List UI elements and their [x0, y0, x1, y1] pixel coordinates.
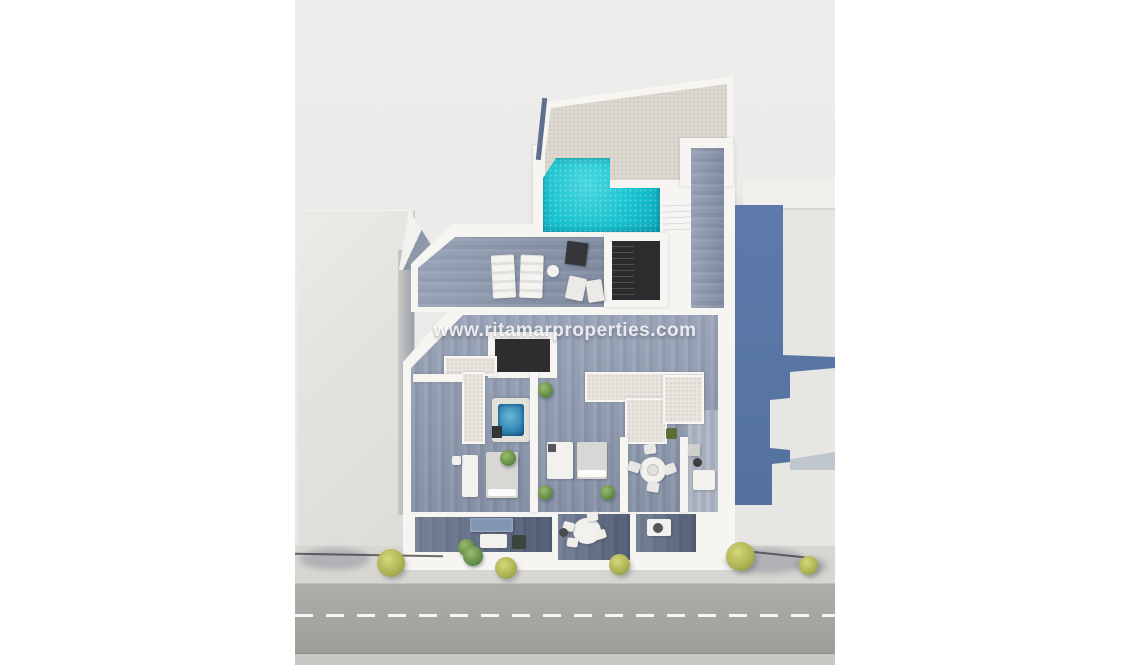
patio-side-table: [559, 528, 568, 537]
dining-chair: [643, 443, 656, 455]
nightstand: [548, 444, 556, 452]
stairwell-steps: [612, 241, 634, 300]
interior-wall: [413, 374, 463, 382]
street-planter-plant: [463, 546, 483, 566]
street-tree: [726, 542, 755, 571]
street-tree: [799, 556, 818, 575]
far-sidewalk-strip: [295, 653, 835, 665]
jacuzzi-towel: [492, 426, 502, 438]
terrace-left-stem: [462, 372, 485, 444]
interior-wall: [620, 437, 628, 512]
bistro-chair: [653, 523, 663, 533]
road-center-dashed-line: [295, 614, 835, 617]
stair-railing: [662, 203, 692, 231]
potted-plant: [500, 450, 516, 466]
deck-side-table: [547, 265, 559, 277]
tree-shadow: [300, 548, 370, 570]
dining-table-setting: [647, 464, 659, 476]
interior-wall: [530, 372, 538, 512]
street-tree: [377, 549, 405, 577]
street-tree: [495, 557, 517, 579]
nightstand: [452, 456, 461, 465]
property-render-page: www.ritamarproperties.com: [0, 0, 1130, 665]
deck-mat: [565, 241, 589, 266]
interior-wall: [680, 437, 688, 512]
small-plant-olive: [666, 428, 677, 439]
sun-lounger: [491, 254, 516, 298]
potted-plant: [600, 485, 615, 500]
watermark-text: www.ritamarproperties.com: [295, 320, 835, 342]
bed-single: [462, 455, 478, 497]
patio-chair: [566, 537, 578, 547]
deck-lounge-chair: [585, 279, 604, 303]
armchair: [688, 444, 700, 456]
dining-chair: [646, 481, 660, 493]
balcony-chaise: [480, 534, 507, 548]
desk: [693, 470, 715, 490]
patio-chair: [587, 511, 599, 521]
potted-plant: [538, 485, 553, 500]
balcony-sofa: [470, 518, 513, 532]
property-render-image: www.ritamarproperties.com: [295, 0, 835, 665]
side-walkway-deck: [691, 148, 724, 308]
bed-pillows: [488, 489, 516, 496]
sun-lounger: [519, 255, 543, 299]
potted-plant: [538, 382, 553, 398]
terrace-center-stem: [625, 398, 667, 444]
stool-dark: [693, 458, 702, 467]
bed-pillows: [578, 470, 606, 477]
road: [295, 583, 835, 654]
terrace-center-right: [663, 375, 704, 424]
interior-void: [495, 339, 550, 372]
balcony-planter: [512, 535, 526, 549]
street-tree: [609, 554, 630, 575]
